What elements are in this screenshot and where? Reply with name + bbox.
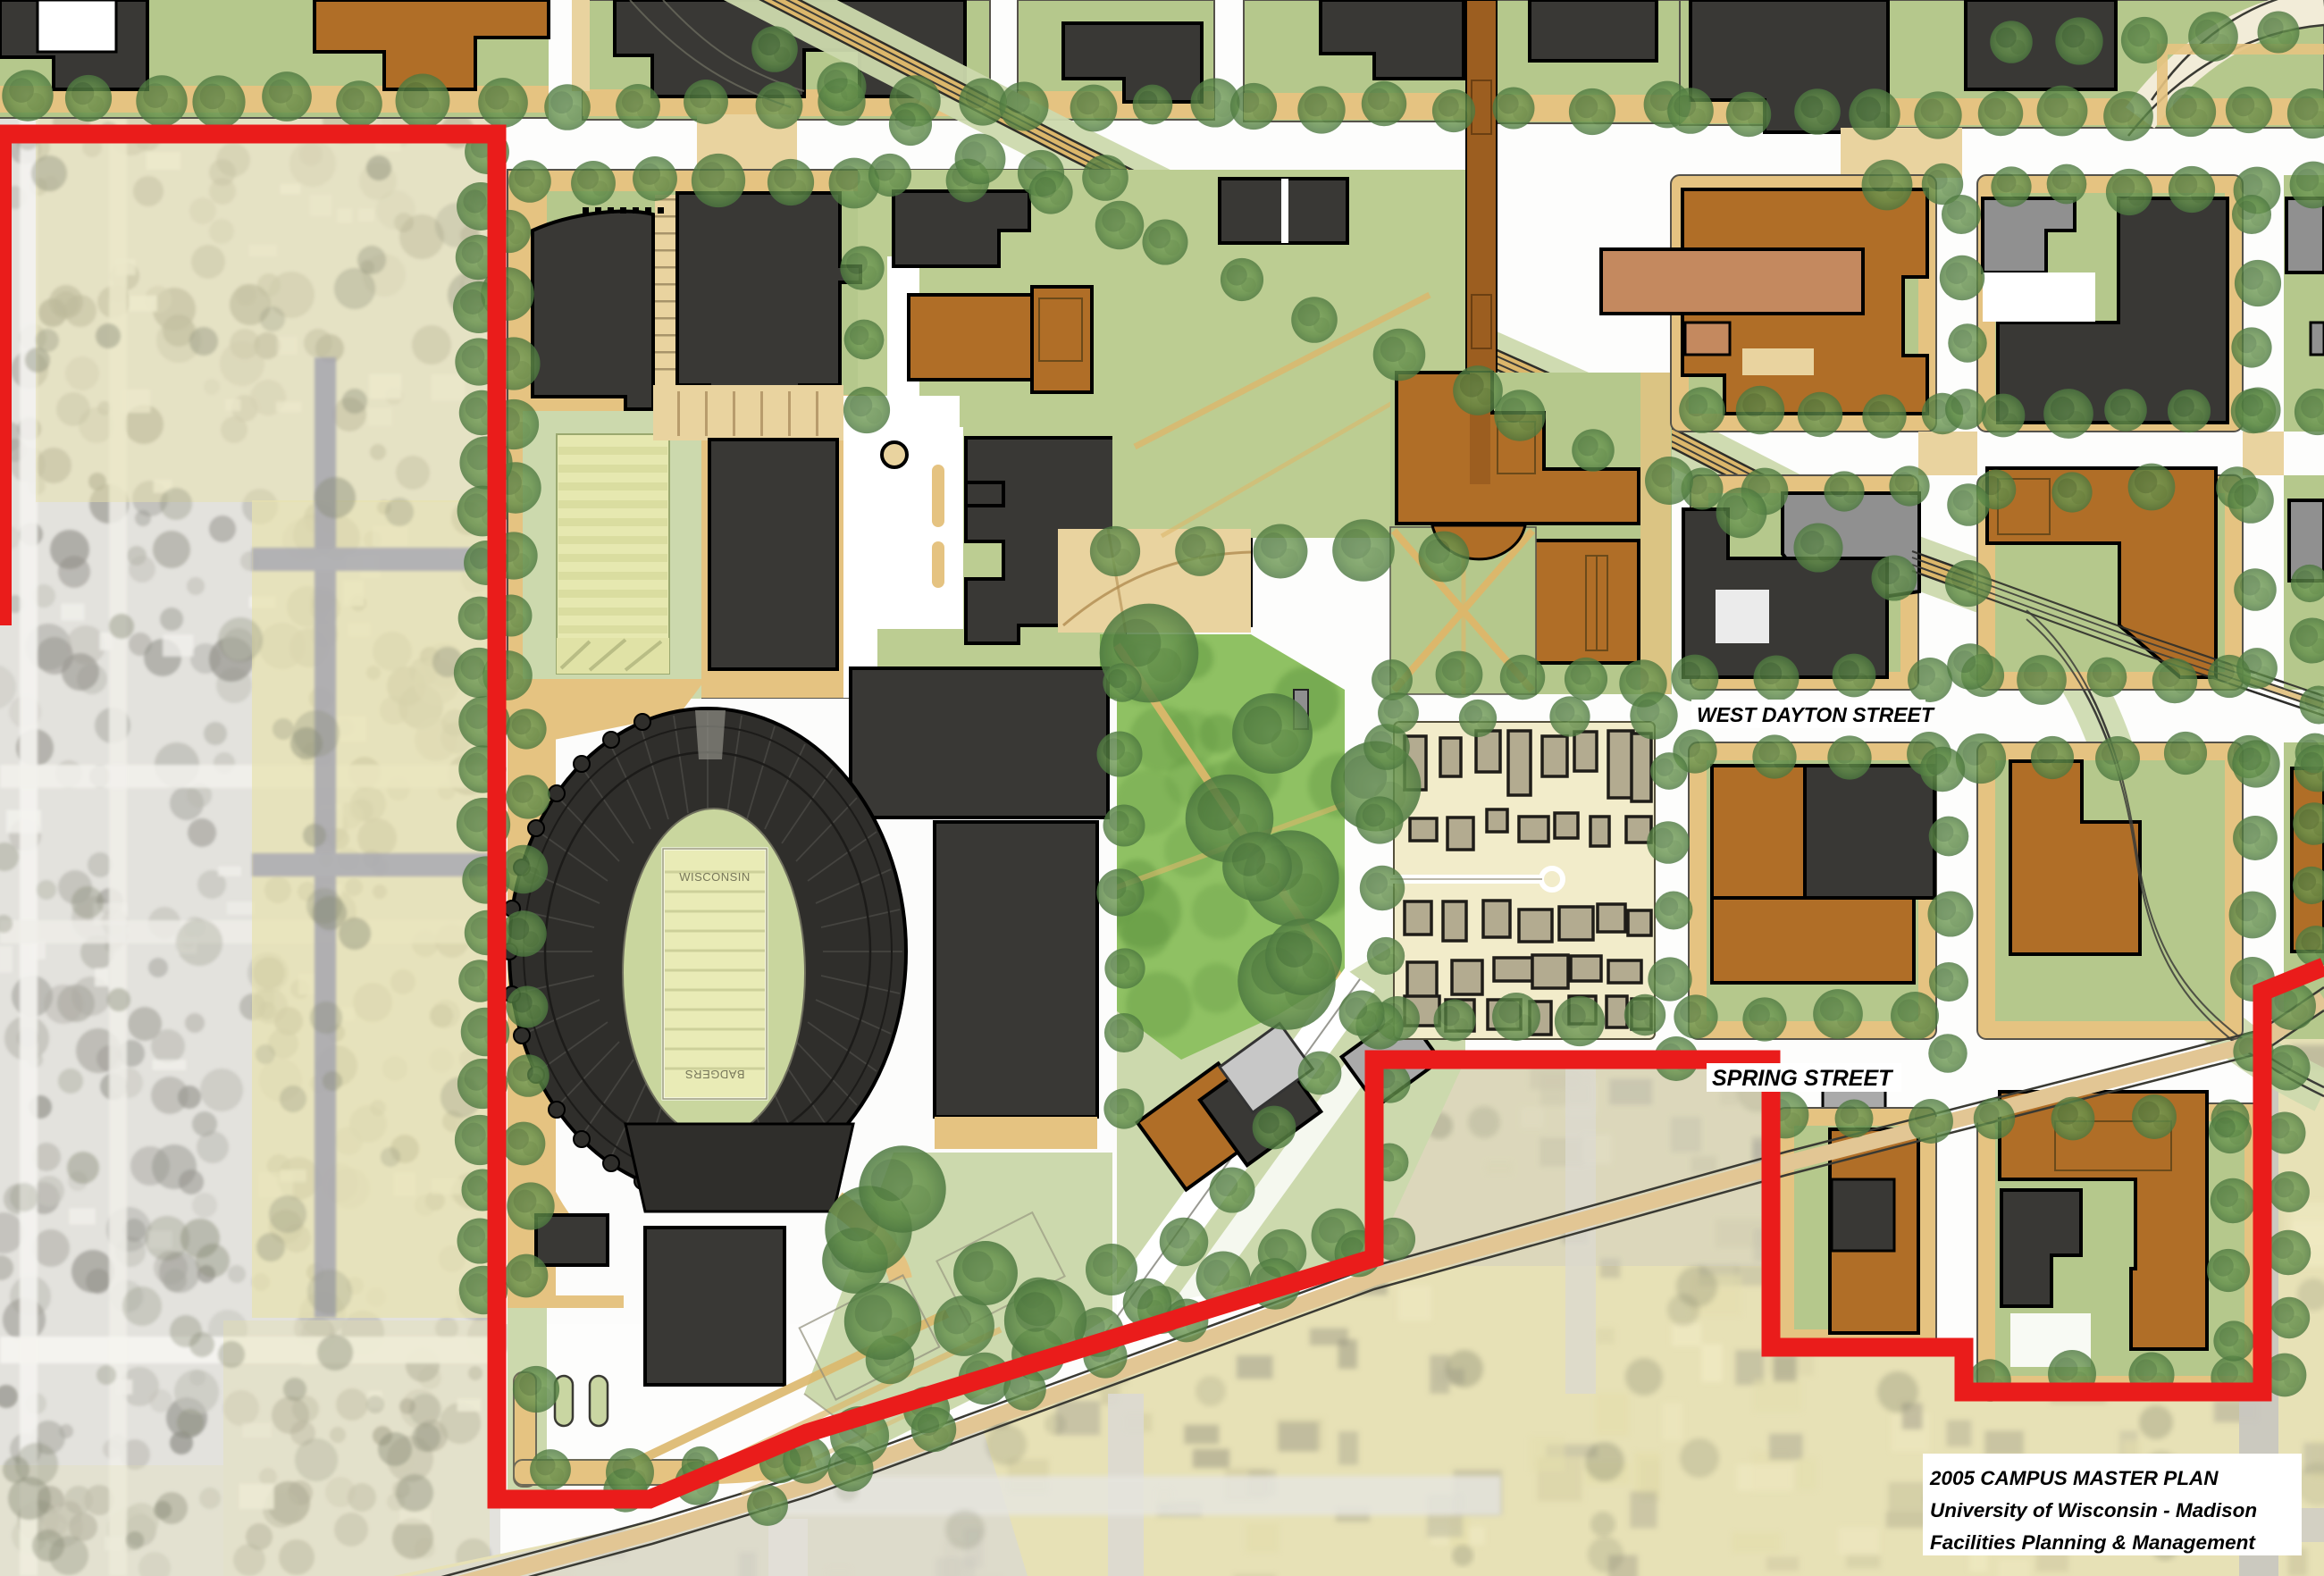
svg-text:WEST DAYTON STREET: WEST DAYTON STREET: [1697, 703, 1935, 726]
svg-text:University of Wisconsin - Madi: University of Wisconsin - Madison: [1930, 1499, 2257, 1522]
svg-text:BADGERS: BADGERS: [684, 1068, 744, 1081]
svg-text:SPRING STREET: SPRING STREET: [1712, 1066, 1894, 1091]
svg-text:Facilities Planning & Manageme: Facilities Planning & Management: [1930, 1531, 2256, 1554]
svg-text:WISCONSIN: WISCONSIN: [679, 870, 751, 884]
svg-text:2005 CAMPUS MASTER PLAN: 2005 CAMPUS MASTER PLAN: [1929, 1467, 2219, 1489]
